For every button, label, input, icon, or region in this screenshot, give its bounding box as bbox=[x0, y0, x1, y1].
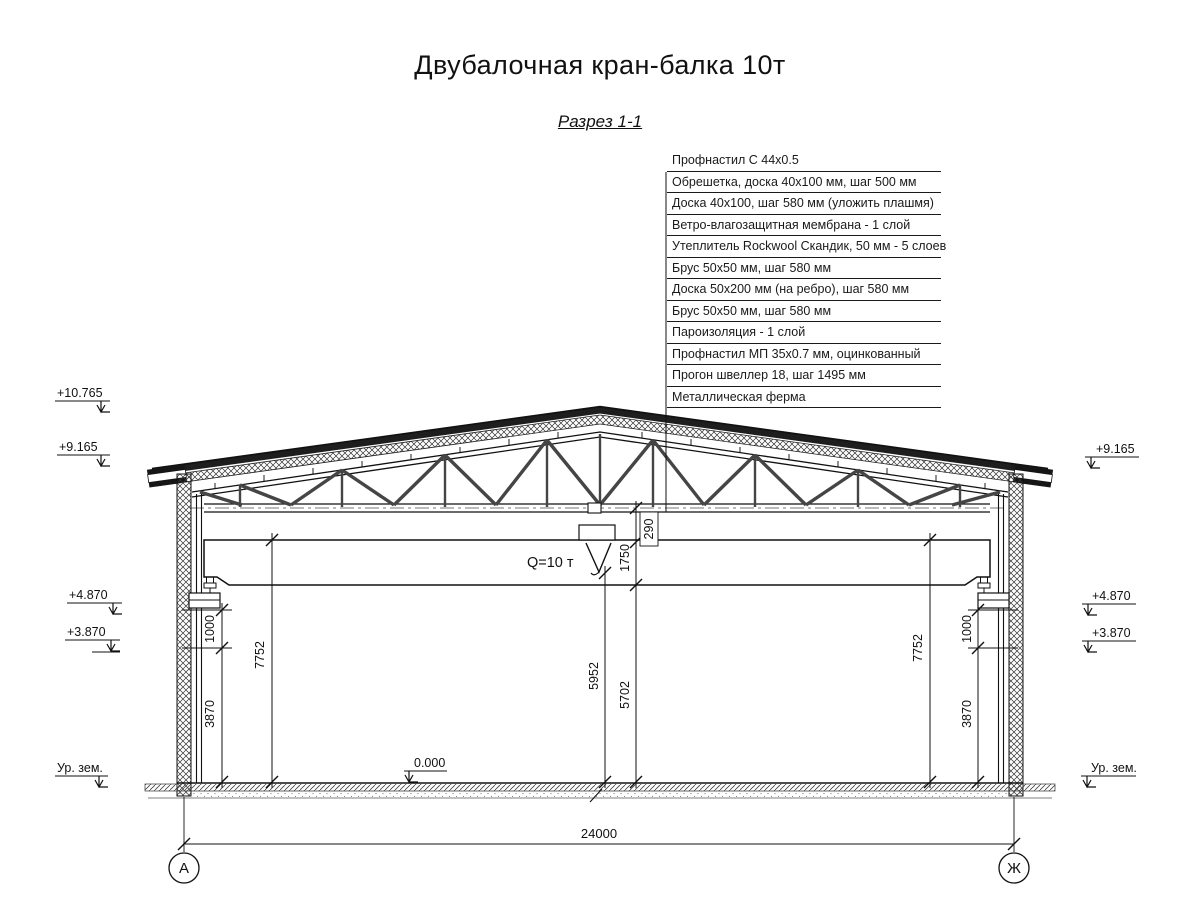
elevation-value: +9.165 bbox=[59, 440, 98, 454]
dim-beam-zone: 1750 bbox=[618, 544, 632, 572]
elevation-mark-rail-left: +3.870 bbox=[65, 625, 120, 652]
left-wall-panel bbox=[177, 474, 191, 796]
elevation-mark-floor-zero: 0.000 bbox=[404, 756, 447, 782]
elevation-mark-ground-right: Ур. зем. bbox=[1081, 761, 1137, 787]
elevation-value: 0.000 bbox=[414, 756, 445, 770]
left-end-wheel bbox=[207, 577, 214, 583]
ground-strip-left bbox=[145, 784, 177, 791]
elevation-value: +4.870 bbox=[69, 588, 108, 602]
floor-slab bbox=[145, 783, 1055, 802]
elevation-value: +4.870 bbox=[1092, 589, 1131, 603]
elevation-value: +10.765 bbox=[57, 386, 103, 400]
grid-axis-zh-label: Ж bbox=[1007, 860, 1021, 877]
elevation-value: +9.165 bbox=[1096, 442, 1135, 456]
elevation-value: Ур. зем. bbox=[1091, 761, 1137, 775]
elevation-mark-ground-left: Ур. зем. bbox=[55, 761, 108, 787]
crane-hoist-trolley bbox=[579, 525, 615, 540]
drawing-sheet: Двубалочная кран-балка 10т Разрез 1-1 Пр… bbox=[0, 0, 1200, 900]
dim-span: 24000 bbox=[581, 826, 617, 841]
grid-axis-a-label: А bbox=[179, 860, 189, 877]
right-end-wheel bbox=[981, 577, 988, 583]
floor-underlay bbox=[177, 792, 1023, 797]
grid-axis-zh: Ж bbox=[999, 853, 1029, 883]
dim-rail-height-left: 3870 bbox=[203, 700, 217, 728]
elevation-mark-rail-right: +3.870 bbox=[1082, 626, 1136, 652]
dim-rail-gap-left: 1000 bbox=[203, 615, 217, 643]
crane-beam: Q=10 т bbox=[204, 525, 990, 585]
dim-height-left: 7752 bbox=[253, 641, 267, 669]
elevation-mark-crane-right: +4.870 bbox=[1082, 589, 1136, 615]
left-rail-console bbox=[189, 593, 220, 608]
dim-hook-height: 5952 bbox=[587, 662, 601, 690]
elevation-value: +3.870 bbox=[1092, 626, 1131, 640]
elevation-mark-crane-left: +4.870 bbox=[67, 588, 122, 614]
elevation-value: +3.870 bbox=[67, 625, 106, 639]
crane-capacity-label: Q=10 т bbox=[527, 555, 574, 571]
elevation-value: Ур. зем. bbox=[57, 761, 103, 775]
section-drawing: Q=10 т +10.765 +9.165 bbox=[0, 0, 1200, 900]
truss-center-plate bbox=[588, 503, 601, 513]
dim-rail-gap-right: 1000 bbox=[960, 615, 974, 643]
crane-beam-body bbox=[204, 540, 990, 585]
elevation-mark-eave-right: +9.165 bbox=[1085, 442, 1139, 468]
ground-strip-right bbox=[1023, 784, 1055, 791]
elevation-mark-eave-left: +9.165 bbox=[57, 440, 110, 466]
dim-height-right: 7752 bbox=[911, 634, 925, 662]
grid-axis-a: А bbox=[169, 853, 199, 883]
right-wall-panel bbox=[1009, 474, 1023, 796]
right-wall bbox=[978, 474, 1023, 796]
elevation-mark-ridge: +10.765 bbox=[55, 386, 110, 412]
dim-clear-height: 5702 bbox=[618, 681, 632, 709]
dim-chord-gap: 290 bbox=[642, 519, 656, 540]
dim-rail-height-right: 3870 bbox=[960, 700, 974, 728]
